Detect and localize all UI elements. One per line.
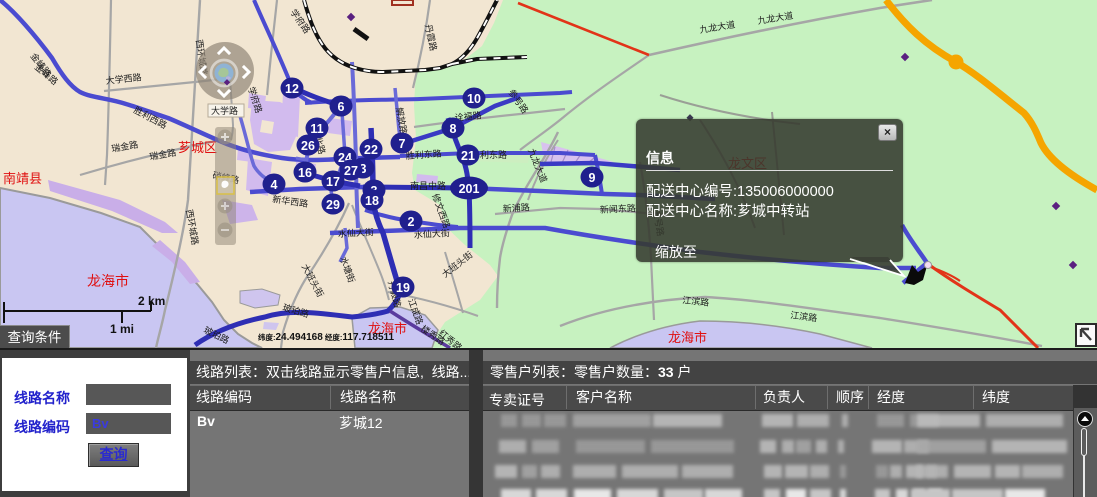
svg-text:南靖县: 南靖县 bbox=[3, 171, 42, 186]
svg-text:水仙大街: 水仙大街 bbox=[338, 226, 375, 239]
svg-text:4: 4 bbox=[271, 178, 278, 192]
svg-text:16: 16 bbox=[298, 166, 312, 180]
svg-text:芗城区: 芗城区 bbox=[178, 140, 217, 155]
svg-text:新浦路: 新浦路 bbox=[502, 201, 530, 214]
svg-text:大学路: 大学路 bbox=[211, 105, 238, 116]
svg-text:10: 10 bbox=[467, 92, 481, 106]
svg-text:17: 17 bbox=[326, 175, 340, 189]
svg-text:2: 2 bbox=[408, 215, 415, 229]
svg-text:27: 27 bbox=[344, 164, 358, 178]
svg-text:26: 26 bbox=[301, 139, 315, 153]
svg-text:水仙大街: 水仙大街 bbox=[414, 227, 451, 240]
svg-text:龙海市: 龙海市 bbox=[87, 273, 129, 289]
svg-text:7: 7 bbox=[399, 137, 406, 151]
svg-text:9: 9 bbox=[589, 171, 596, 185]
svg-text:19: 19 bbox=[396, 281, 410, 295]
svg-text:利东路: 利东路 bbox=[480, 149, 507, 160]
svg-text:22: 22 bbox=[364, 143, 378, 157]
svg-text:29: 29 bbox=[326, 198, 340, 212]
svg-text:201: 201 bbox=[459, 182, 480, 196]
svg-text:6: 6 bbox=[338, 100, 345, 114]
svg-text:龙海市: 龙海市 bbox=[668, 330, 707, 345]
svg-text:8: 8 bbox=[450, 122, 457, 136]
svg-text:21: 21 bbox=[461, 149, 475, 163]
svg-text:纬度:24.494168 经度:117.718511: 纬度:24.494168 经度:117.718511 bbox=[258, 332, 395, 343]
svg-text:11: 11 bbox=[310, 122, 323, 136]
svg-text:1 mi: 1 mi bbox=[110, 322, 134, 336]
svg-text:南昌中路: 南昌中路 bbox=[410, 180, 446, 191]
svg-text:12: 12 bbox=[285, 82, 299, 96]
svg-text:新闻东路: 新闻东路 bbox=[600, 202, 637, 215]
svg-text:2 km: 2 km bbox=[138, 294, 165, 308]
svg-text:18: 18 bbox=[365, 194, 379, 208]
